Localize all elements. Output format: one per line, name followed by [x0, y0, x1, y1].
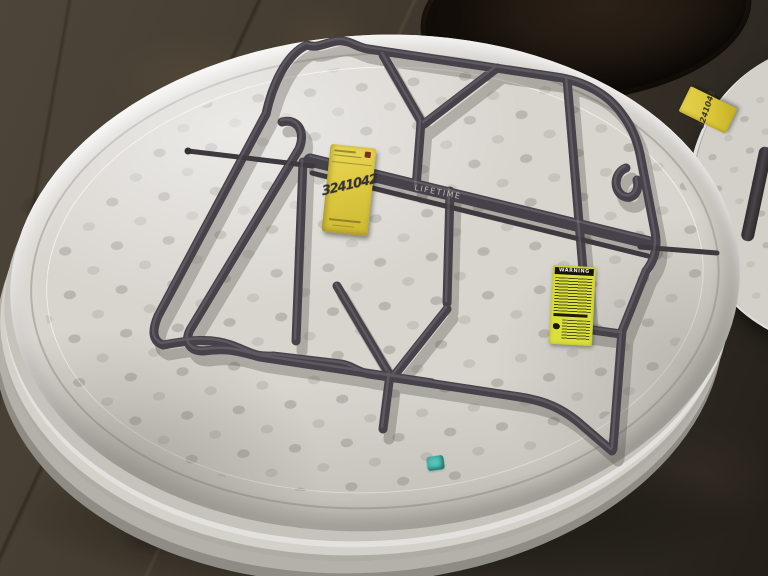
tag-header-print — [334, 154, 362, 158]
tag-logo-mark — [364, 151, 371, 158]
teal-round-sticker — [426, 455, 445, 471]
tag-footer-print — [329, 218, 361, 223]
warning-body-text — [554, 277, 593, 313]
tag-divider — [332, 161, 372, 166]
tag-footer-print — [332, 224, 354, 227]
adjacent-tag-number: 3241043 — [696, 89, 717, 130]
warning-body-text — [561, 319, 590, 340]
warehouse-photo: 3241043 LIFETIME — [0, 0, 768, 576]
warning-subheading-bar — [553, 313, 587, 318]
auction-tag: 3241042 — [322, 144, 377, 236]
warning-label: WARNING — [549, 265, 596, 346]
warning-title: WARNING — [555, 267, 594, 276]
warning-logo-mark — [553, 323, 560, 329]
tag-header-print — [334, 149, 356, 153]
tag-number: 3241042 — [320, 172, 378, 200]
